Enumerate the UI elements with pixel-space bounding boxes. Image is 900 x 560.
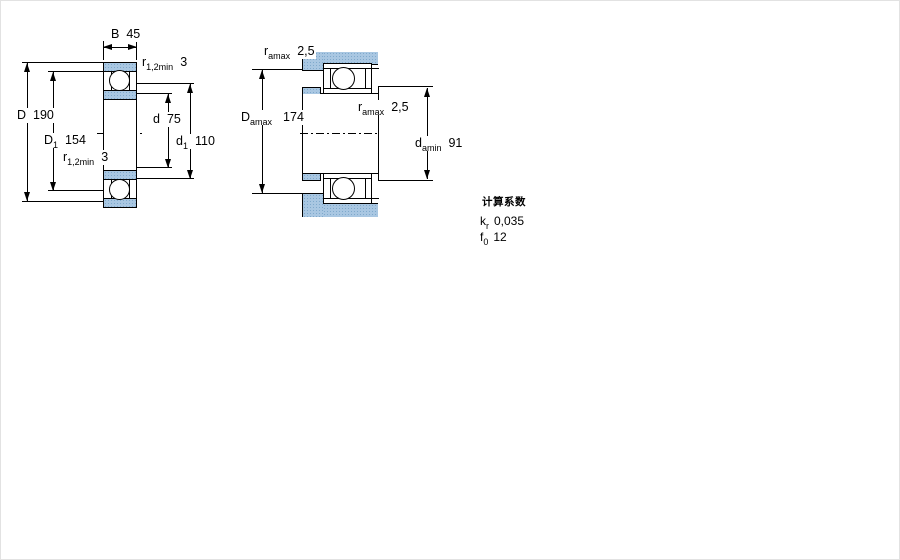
dimension-line-d1 xyxy=(190,84,191,179)
extension-line xyxy=(378,86,433,87)
right-bearing-bottom-section xyxy=(323,173,372,204)
dim-label-Damax: Damax174 xyxy=(240,110,305,125)
arrowhead-icon xyxy=(24,192,30,201)
factor-value: 0,035 xyxy=(494,214,524,228)
dim-symbol: D xyxy=(17,108,26,122)
bearing-drawing-canvas: B45 r1,2min3 D190 d75 D1154 d1110 r1,2mi… xyxy=(0,0,900,560)
dim-symbol: D xyxy=(44,133,53,147)
calc-factors-heading: 计算系数 xyxy=(482,194,526,209)
dim-value: 3 xyxy=(180,55,187,69)
dimension-line-d xyxy=(168,94,169,168)
dim-symbol: d xyxy=(415,136,422,150)
dim-symbol: B xyxy=(111,27,119,41)
extension-line xyxy=(252,193,302,194)
extension-line xyxy=(48,71,103,72)
dim-label-r12min-bottom: r1,2min3 xyxy=(62,150,109,165)
dimension-line-D1 xyxy=(53,72,54,191)
dim-value: 190 xyxy=(33,108,54,122)
shaft-seat-line xyxy=(372,173,379,174)
race-cheek-line xyxy=(330,179,331,198)
dim-subscript: 1,2min xyxy=(67,157,94,167)
race-cheek-line xyxy=(365,69,366,88)
dim-symbol: d xyxy=(176,134,183,148)
dim-subscript: amax xyxy=(250,117,272,127)
dim-label-ramax-top: ramax2,5 xyxy=(263,44,316,59)
dim-subscript: 1 xyxy=(183,141,188,151)
shaft-bottom-shoulder xyxy=(302,174,321,181)
extension-line xyxy=(48,190,103,191)
dim-subscript: amax xyxy=(268,51,290,61)
race-cheek-line xyxy=(365,179,366,198)
right-bearing-top-section xyxy=(323,63,372,94)
dim-subscript: amin xyxy=(422,143,442,153)
dim-value: 110 xyxy=(195,134,215,148)
arrowhead-icon xyxy=(165,94,171,103)
factor-subscript: 0 xyxy=(483,237,488,247)
left-bearing-body xyxy=(103,62,137,208)
arrowhead-icon xyxy=(424,88,430,97)
dim-value: 2,5 xyxy=(391,100,408,114)
arrowhead-icon xyxy=(24,63,30,72)
dim-value: 154 xyxy=(65,133,86,147)
factor-value: 12 xyxy=(493,230,506,244)
housing-bottom-shoulder xyxy=(302,193,324,217)
calc-factor-kr: kr0,035 xyxy=(480,214,524,229)
ball-top xyxy=(109,70,130,91)
dim-label-D: D190 xyxy=(16,108,55,123)
dim-symbol: d xyxy=(153,112,160,126)
ball-top xyxy=(332,67,355,90)
arrowhead-icon xyxy=(128,44,137,50)
arrowhead-icon xyxy=(259,70,265,79)
dim-label-B: B45 xyxy=(110,27,141,42)
dim-label-d: d75 xyxy=(152,112,182,127)
arrowhead-icon xyxy=(103,44,112,50)
dim-symbol: D xyxy=(241,110,250,124)
extension-line xyxy=(378,180,433,181)
dim-value: 75 xyxy=(167,112,181,126)
dim-label-damin: damin91 xyxy=(414,136,463,151)
ball-bottom xyxy=(109,179,130,200)
dim-value: 91 xyxy=(448,136,462,150)
arrowhead-icon xyxy=(424,170,430,179)
race-cheek-line xyxy=(330,69,331,88)
calc-factor-f0: f012 xyxy=(480,230,507,245)
arrowhead-icon xyxy=(187,170,193,179)
arrowhead-icon xyxy=(259,184,265,193)
shaft-top-shoulder xyxy=(302,87,321,94)
arrowhead-icon xyxy=(50,72,56,81)
extension-line xyxy=(22,62,103,63)
dim-value: 45 xyxy=(126,27,140,41)
dim-subscript: 1,2min xyxy=(146,62,173,72)
dimension-line-damin xyxy=(427,88,428,179)
extension-line xyxy=(137,178,194,179)
axis-centerline xyxy=(300,133,380,134)
dim-label-d1: d1110 xyxy=(175,134,216,149)
arrowhead-icon xyxy=(165,159,171,168)
dim-value: 174 xyxy=(283,110,304,124)
ring-face-line xyxy=(372,198,379,199)
dim-value: 3 xyxy=(101,150,108,164)
dim-label-r12min-top: r1,2min3 xyxy=(141,55,188,70)
ball-bottom xyxy=(332,177,355,200)
arrowhead-icon xyxy=(50,182,56,191)
dim-subscript: 1 xyxy=(53,140,58,150)
dim-subscript: amax xyxy=(362,107,384,117)
shaft-seat-line xyxy=(372,93,379,94)
ring-face-line xyxy=(372,68,379,69)
dim-label-ramax-mid: ramax2,5 xyxy=(357,100,410,115)
shaft-left-face-line xyxy=(302,87,303,181)
arrowhead-icon xyxy=(187,84,193,93)
extension-line xyxy=(22,201,103,202)
dimension-line-Damax xyxy=(262,70,263,194)
dim-value: 2,5 xyxy=(297,44,314,58)
extension-line xyxy=(137,83,194,84)
dimension-line-D xyxy=(27,63,28,201)
inner-ring-top-section xyxy=(104,90,136,100)
dim-label-D1: D1154 xyxy=(43,133,87,148)
